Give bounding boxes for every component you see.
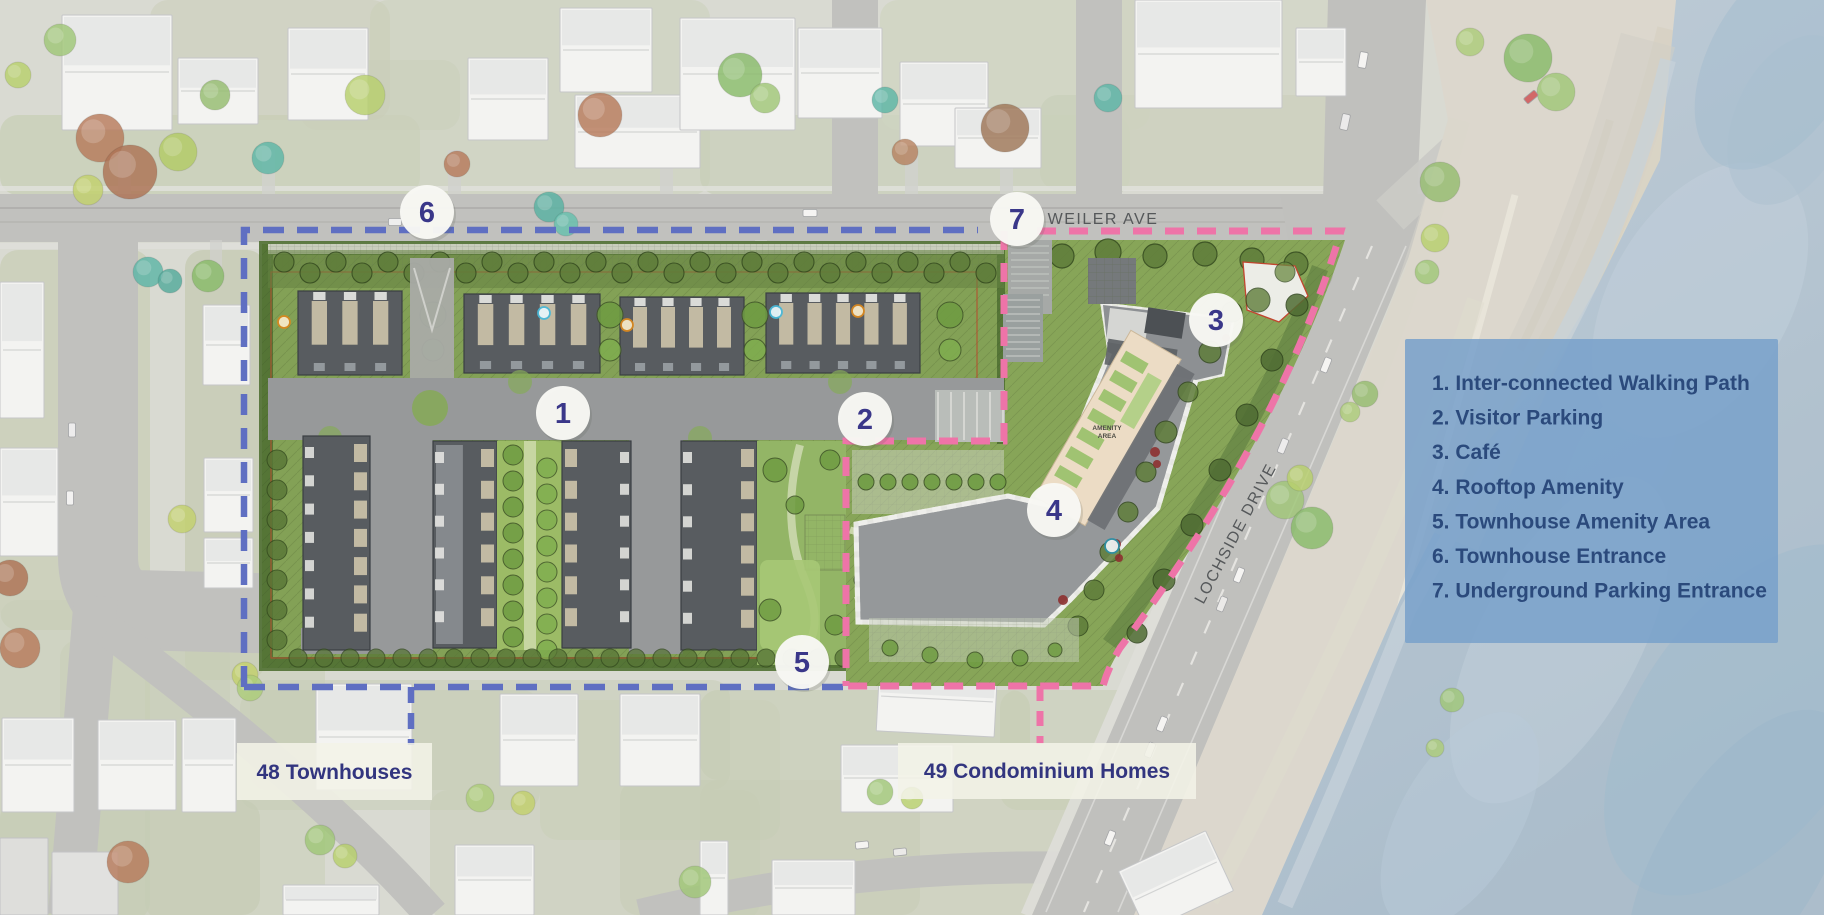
svg-text:49 Condominium Homes: 49 Condominium Homes [924, 760, 1170, 783]
svg-text:5. Townhouse Amenity Area: 5. Townhouse Amenity Area [1432, 510, 1710, 533]
svg-text:2. Visitor Parking: 2. Visitor Parking [1432, 407, 1603, 430]
svg-text:2: 2 [857, 404, 873, 436]
svg-text:AMENITY: AMENITY [1092, 425, 1122, 432]
svg-text:4. Rooftop Amenity: 4. Rooftop Amenity [1432, 476, 1624, 499]
svg-text:7: 7 [1009, 204, 1025, 236]
svg-text:AREA: AREA [1098, 433, 1117, 440]
svg-text:6. Townhouse Entrance: 6. Townhouse Entrance [1432, 545, 1666, 568]
svg-text:1: 1 [555, 398, 571, 430]
svg-text:WEILER AVE: WEILER AVE [1048, 211, 1159, 228]
svg-text:6: 6 [419, 197, 435, 229]
svg-text:5: 5 [794, 647, 810, 679]
svg-text:3: 3 [1208, 305, 1224, 337]
svg-text:4: 4 [1046, 495, 1062, 527]
svg-text:48 Townhouses: 48 Townhouses [257, 761, 413, 784]
svg-text:1. Inter-connected Walking Pat: 1. Inter-connected Walking Path [1432, 372, 1750, 395]
svg-text:7. Underground Parking Entranc: 7. Underground Parking Entrance [1432, 580, 1767, 603]
svg-text:3. Café: 3. Café [1432, 441, 1501, 464]
